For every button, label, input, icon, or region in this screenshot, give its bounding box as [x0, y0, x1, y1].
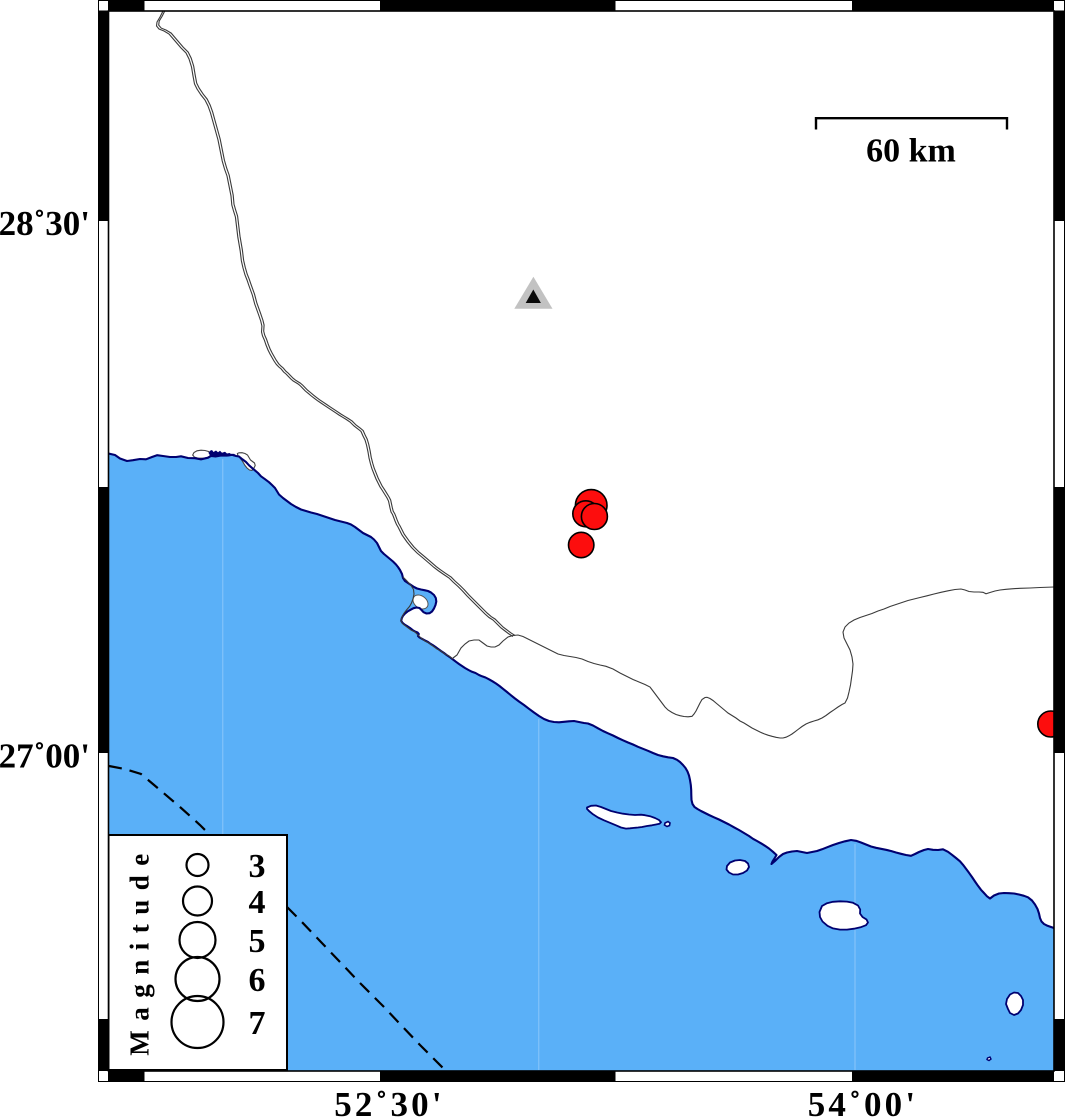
svg-text:54˚00': 54˚00' [808, 1085, 919, 1120]
svg-text:28˚30': 28˚30' [0, 204, 90, 243]
svg-text:Magnitude: Magnitude [125, 844, 155, 1056]
svg-text:7: 7 [249, 1005, 266, 1042]
svg-text:6: 6 [249, 962, 266, 999]
svg-text:60 km: 60 km [866, 133, 956, 170]
svg-text:4: 4 [249, 884, 266, 921]
svg-text:5: 5 [249, 923, 266, 960]
svg-text:52˚30': 52˚30' [334, 1085, 445, 1120]
svg-text:27˚00': 27˚00' [0, 737, 90, 776]
svg-text:3: 3 [249, 848, 266, 885]
